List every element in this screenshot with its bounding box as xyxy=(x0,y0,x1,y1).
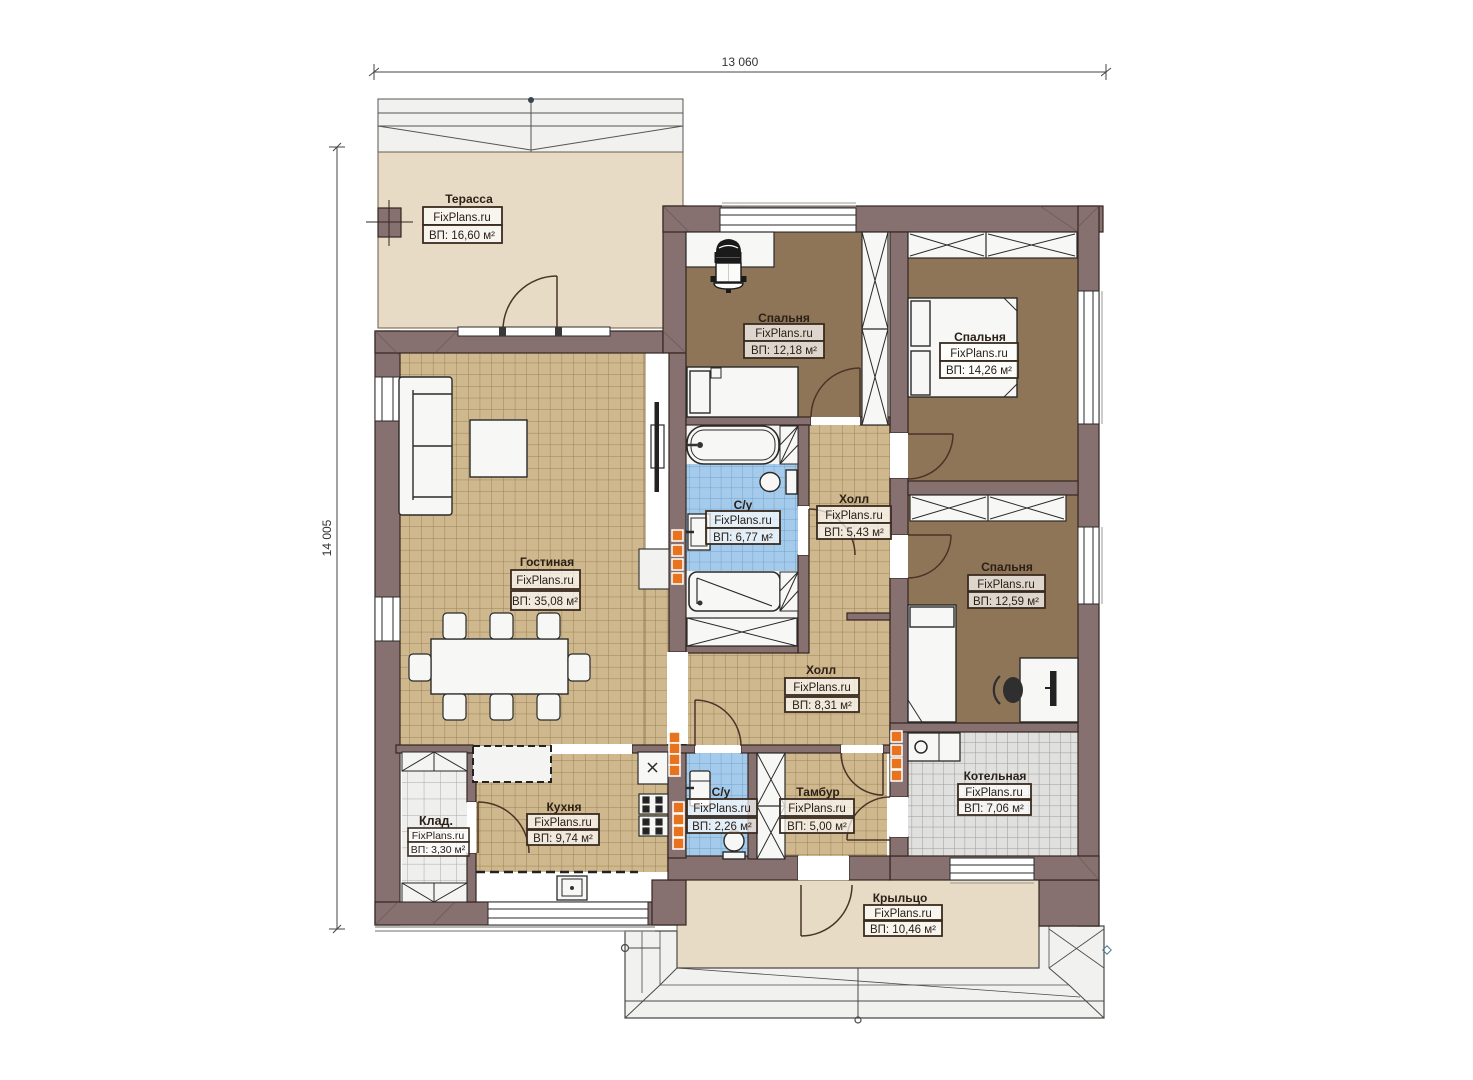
svg-text:С/у: С/у xyxy=(712,785,731,799)
svg-text:ВП: 7,06 м²: ВП: 7,06 м² xyxy=(964,803,1024,815)
svg-text:FixPlans.ru: FixPlans.ru xyxy=(793,682,851,694)
svg-text:Тамбур: Тамбур xyxy=(796,785,840,799)
svg-text:ВП: 12,59 м²: ВП: 12,59 м² xyxy=(973,596,1039,608)
svg-text:FixPlans.ru: FixPlans.ru xyxy=(874,908,932,920)
svg-text:FixPlans.ru: FixPlans.ru xyxy=(825,510,883,522)
svg-text:FixPlans.ru: FixPlans.ru xyxy=(788,803,846,815)
svg-text:FixPlans.ru: FixPlans.ru xyxy=(965,787,1023,799)
svg-text:FixPlans.ru: FixPlans.ru xyxy=(516,575,574,587)
svg-text:14 005: 14 005 xyxy=(320,519,334,556)
svg-text:Крыльцо: Крыльцо xyxy=(873,891,928,905)
svg-text:FixPlans.ru: FixPlans.ru xyxy=(755,328,813,340)
svg-text:FixPlans.ru: FixPlans.ru xyxy=(977,579,1035,591)
svg-text:Терасса: Терасса xyxy=(445,192,493,206)
svg-text:Спальня: Спальня xyxy=(981,560,1033,574)
svg-text:ВП: 9,74 м²: ВП: 9,74 м² xyxy=(533,833,593,845)
svg-text:ВП: 2,26 м²: ВП: 2,26 м² xyxy=(692,821,752,833)
svg-text:ВП: 8,31 м²: ВП: 8,31 м² xyxy=(792,700,852,712)
svg-text:Спальня: Спальня xyxy=(954,330,1006,344)
svg-text:Котельная: Котельная xyxy=(964,769,1027,783)
svg-text:ВП: 5,43 м²: ВП: 5,43 м² xyxy=(824,527,884,539)
svg-text:13 060: 13 060 xyxy=(722,55,759,69)
svg-text:ВП: 35,08 м²: ВП: 35,08 м² xyxy=(512,596,578,608)
svg-text:FixPlans.ru: FixPlans.ru xyxy=(950,348,1008,360)
svg-text:Холл: Холл xyxy=(806,663,836,677)
svg-text:ВП: 6,77 м²: ВП: 6,77 м² xyxy=(713,532,773,544)
svg-text:FixPlans.ru: FixPlans.ru xyxy=(433,212,491,224)
svg-text:ВП: 5,00 м²: ВП: 5,00 м² xyxy=(787,821,847,833)
svg-text:ВП: 16,60 м²: ВП: 16,60 м² xyxy=(429,230,495,242)
svg-text:Холл: Холл xyxy=(839,492,869,506)
svg-text:ВП: 3,30 м²: ВП: 3,30 м² xyxy=(411,844,466,856)
svg-text:FixPlans.ru: FixPlans.ru xyxy=(693,803,751,815)
svg-text:FixPlans.ru: FixPlans.ru xyxy=(714,515,772,527)
svg-text:ВП: 14,26 м²: ВП: 14,26 м² xyxy=(946,365,1012,377)
svg-text:Клад.: Клад. xyxy=(419,814,453,828)
svg-text:ВП: 12,18 м²: ВП: 12,18 м² xyxy=(751,345,817,357)
svg-text:ВП: 10,46 м²: ВП: 10,46 м² xyxy=(870,924,936,936)
svg-text:Гостиная: Гостиная xyxy=(520,555,574,569)
svg-text:С/у: С/у xyxy=(734,498,753,512)
svg-text:Кухня: Кухня xyxy=(546,800,581,814)
svg-text:FixPlans.ru: FixPlans.ru xyxy=(412,830,465,842)
svg-text:Спальня: Спальня xyxy=(758,311,810,325)
svg-text:FixPlans.ru: FixPlans.ru xyxy=(534,817,592,829)
